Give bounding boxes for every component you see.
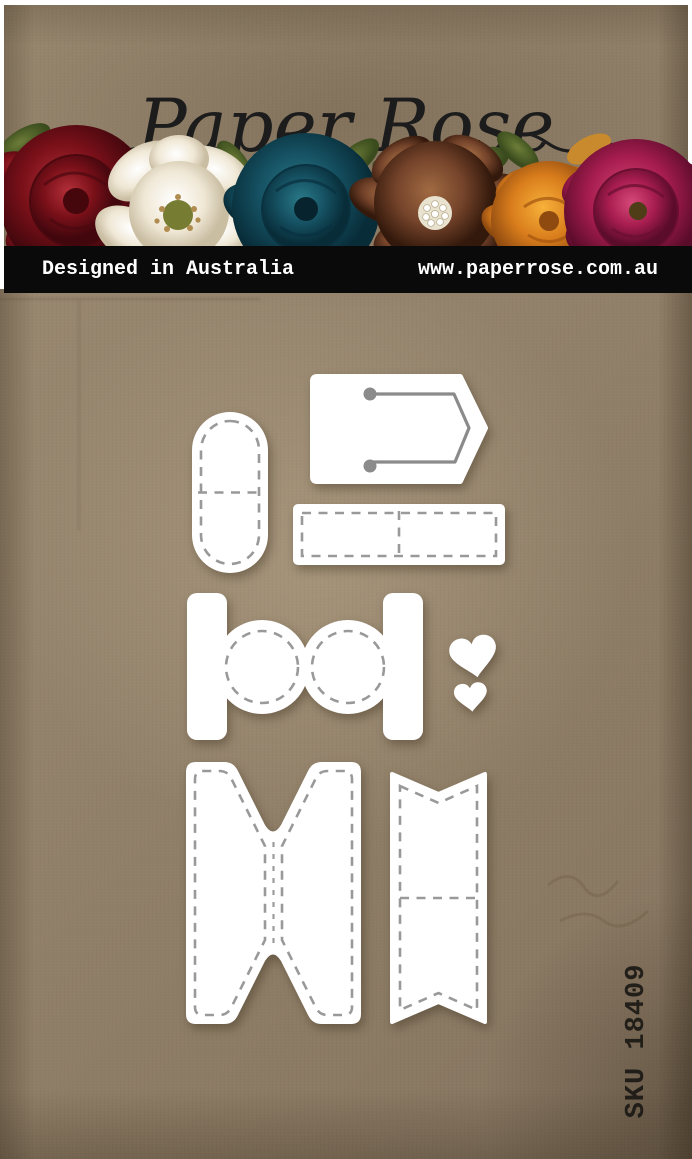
sku-label: SKU 18409 bbox=[622, 964, 652, 1119]
heart-small-die bbox=[452, 681, 490, 716]
paper-crease bbox=[0, 298, 260, 300]
faint-ink-marks bbox=[540, 855, 690, 945]
spool-circles-die bbox=[187, 593, 423, 740]
paper-crease bbox=[78, 300, 80, 530]
header-banner: Paper Rose bbox=[0, 0, 692, 289]
designed-in-text: Designed in Australia bbox=[42, 258, 294, 281]
pill-tab-die bbox=[192, 412, 268, 573]
spool-wrap-die bbox=[186, 762, 361, 1024]
info-bar: Designed in Australia www.paperrose.com.… bbox=[4, 246, 692, 293]
rectangle-label-die bbox=[293, 504, 505, 565]
product-image: Paper Rose bbox=[0, 0, 692, 1159]
jewel-center bbox=[418, 196, 452, 230]
arrow-tag-die bbox=[310, 374, 490, 484]
fishtail-banner-die bbox=[390, 772, 487, 1024]
website-text: www.paperrose.com.au bbox=[418, 258, 658, 281]
flower-banner bbox=[4, 115, 692, 249]
heart-large-die bbox=[448, 634, 500, 681]
